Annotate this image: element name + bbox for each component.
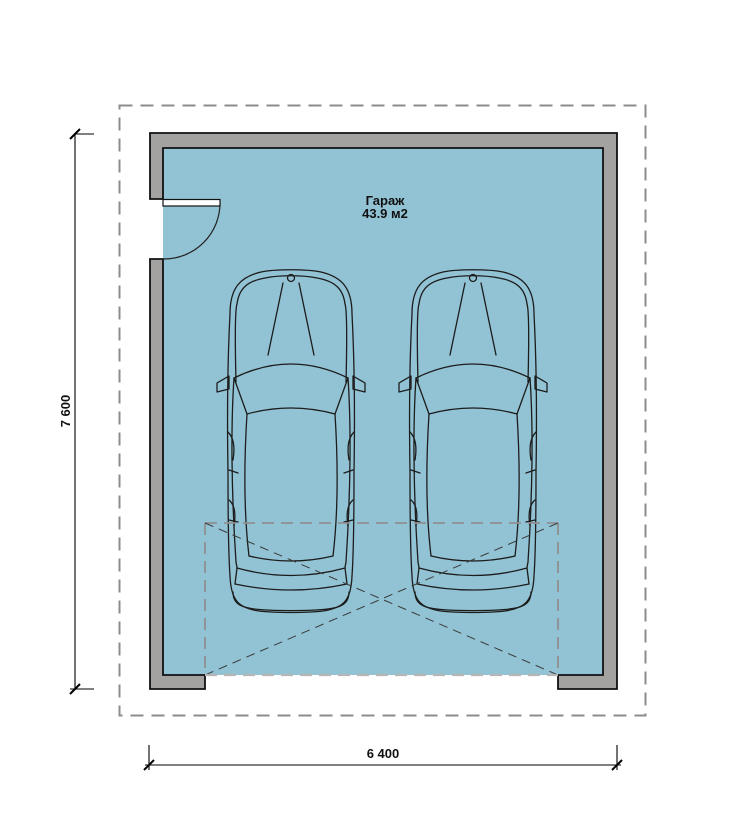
- dimension-horizontal-label: 6 400: [367, 746, 400, 761]
- dimension-vertical: [70, 129, 94, 694]
- floor-plan-drawing: 7 600 6 400 Гараж 43.9 м2: [0, 0, 744, 837]
- door-leaf: [163, 200, 220, 207]
- dimension-vertical-label: 7 600: [58, 395, 73, 428]
- floor-plan-page: 7 600 6 400 Гараж 43.9 м2: [0, 0, 744, 837]
- room-area-label: 43.9 м2: [362, 206, 408, 221]
- room-label-group: Гараж 43.9 м2: [362, 193, 408, 221]
